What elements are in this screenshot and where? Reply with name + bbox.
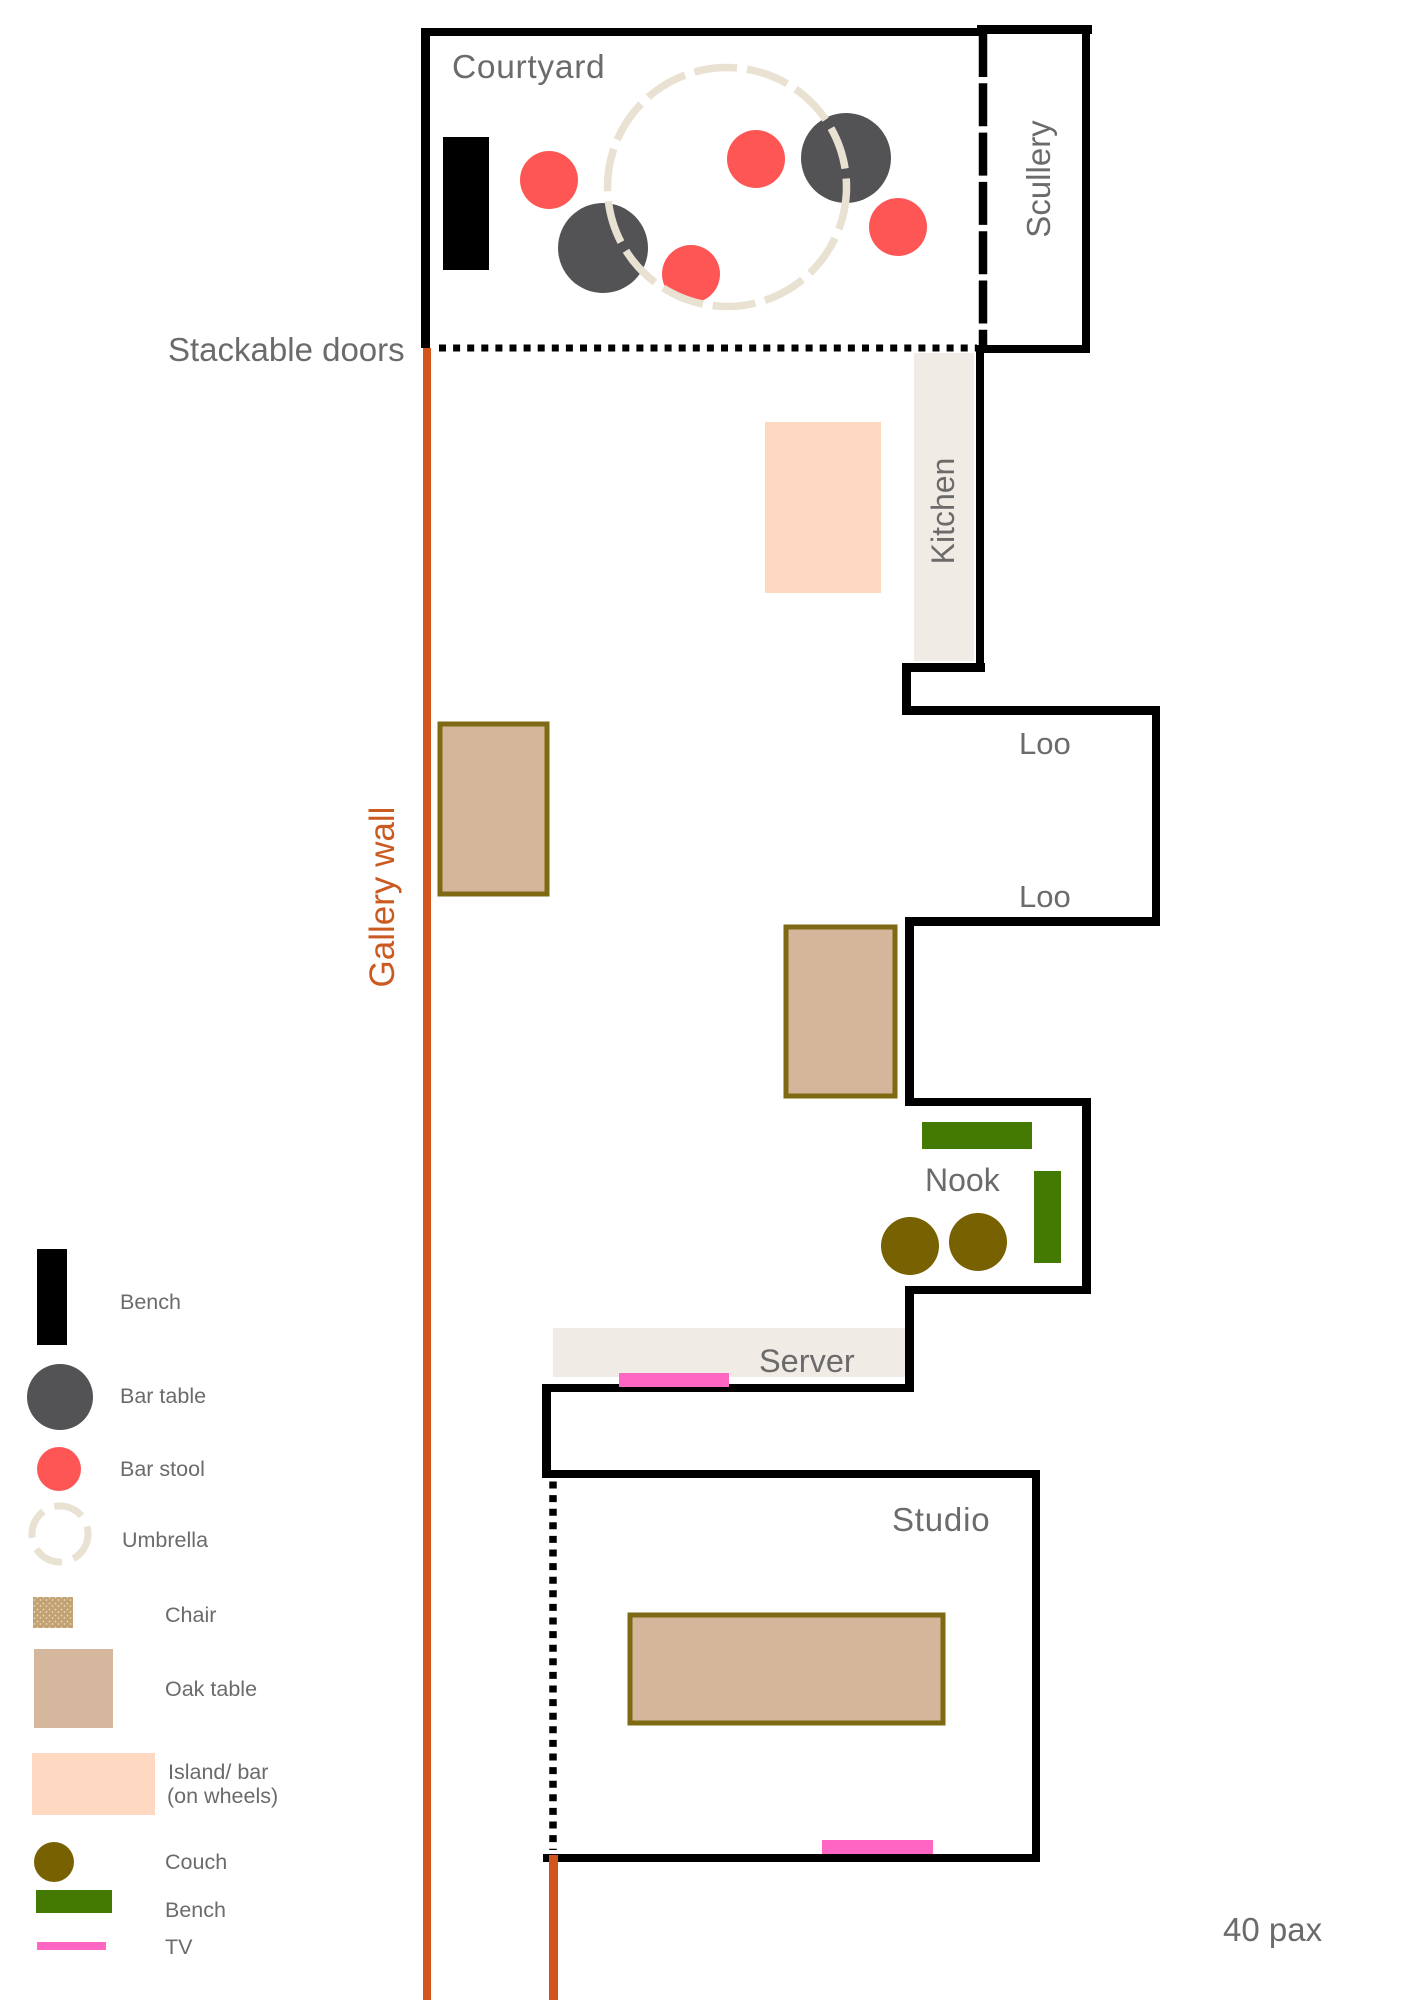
svg-text:Kitchen: Kitchen (925, 458, 961, 565)
svg-text:Loo: Loo (1019, 879, 1071, 914)
svg-text:Oak table: Oak table (165, 1677, 257, 1701)
svg-text:Loo: Loo (1019, 726, 1071, 761)
svg-text:Stackable doors: Stackable doors (168, 331, 405, 368)
svg-text:(on wheels): (on wheels) (167, 1784, 278, 1808)
svg-text:Server: Server (759, 1343, 855, 1379)
svg-text:Bar table: Bar table (120, 1384, 206, 1408)
svg-text:Scullery: Scullery (1020, 120, 1057, 238)
svg-text:Couch: Couch (165, 1850, 227, 1874)
svg-text:TV: TV (165, 1935, 193, 1959)
svg-text:Bench: Bench (165, 1898, 226, 1922)
svg-text:Studio: Studio (892, 1501, 990, 1538)
svg-text:Bar stool: Bar stool (120, 1457, 205, 1481)
svg-text:Umbrella: Umbrella (122, 1528, 208, 1552)
svg-text:Courtyard: Courtyard (452, 49, 605, 86)
svg-text:40 pax: 40 pax (1223, 1911, 1323, 1948)
svg-text:Bench: Bench (120, 1290, 181, 1314)
svg-text:Island/ bar: Island/ bar (168, 1760, 268, 1784)
svg-text:Nook: Nook (925, 1162, 1001, 1198)
svg-text:Chair: Chair (165, 1603, 216, 1627)
svg-text:Gallery wall: Gallery wall (363, 807, 402, 988)
